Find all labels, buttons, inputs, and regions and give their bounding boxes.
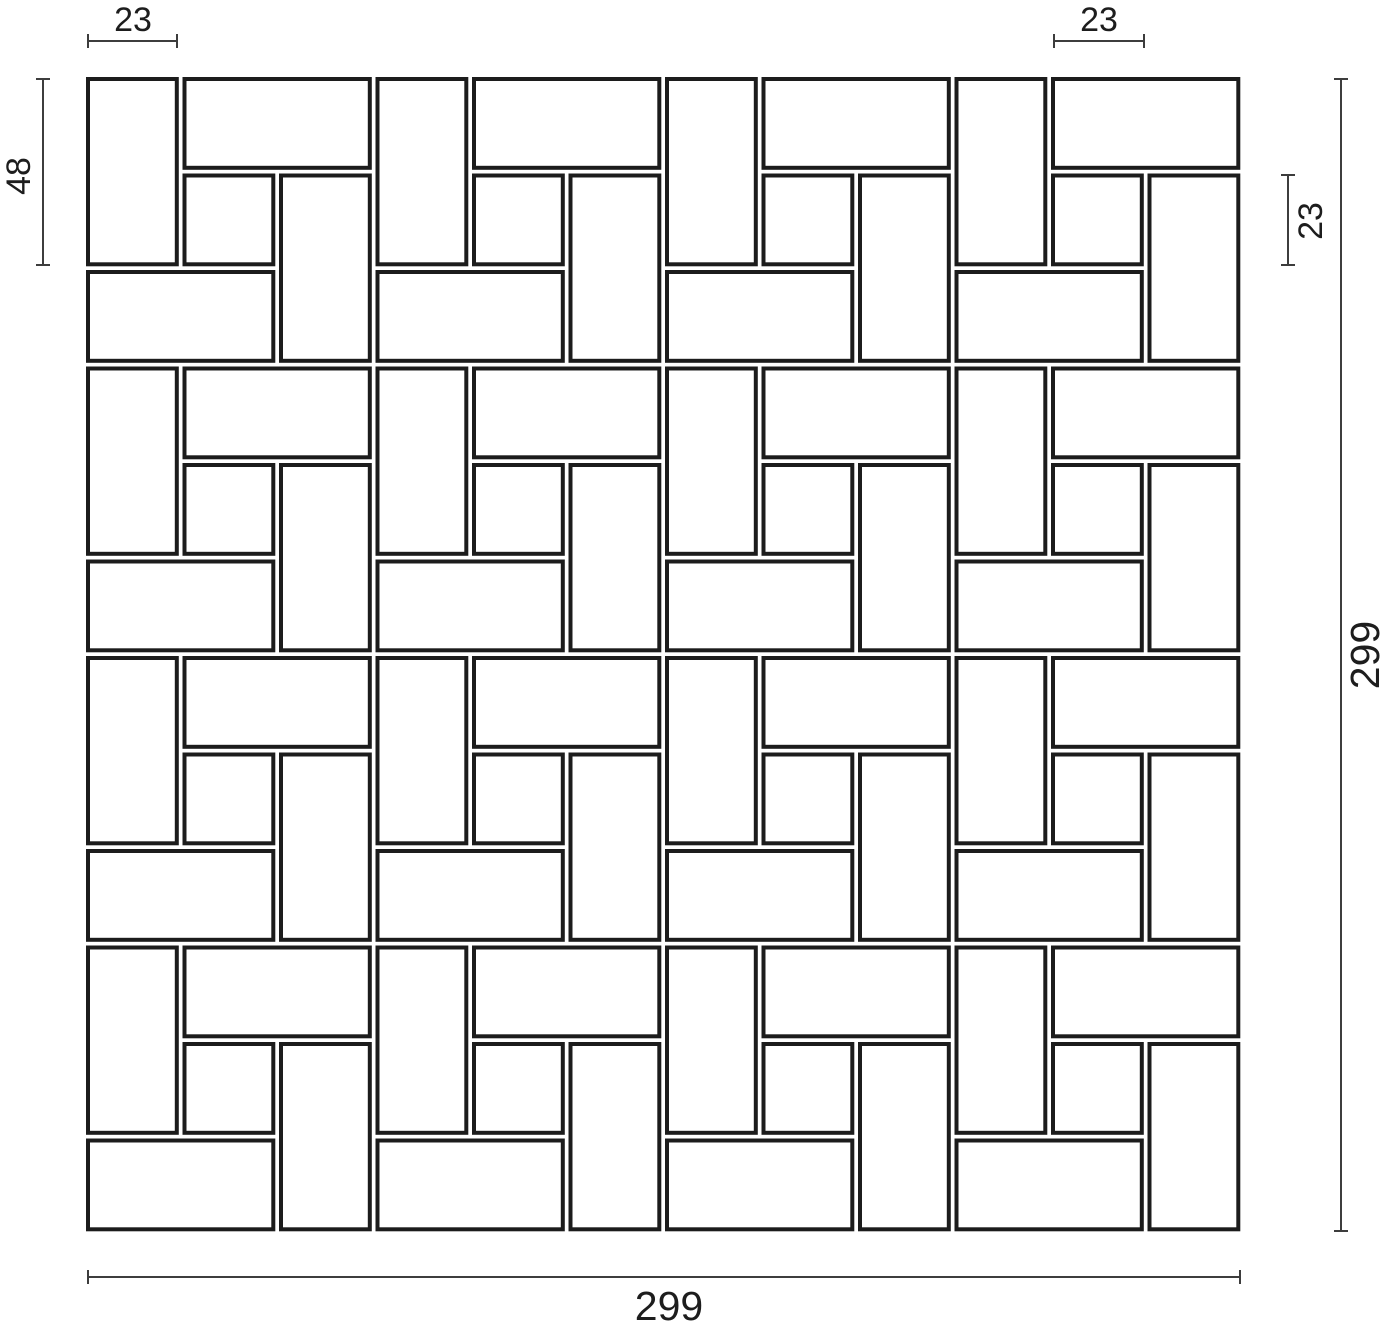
tile-horizontal-top xyxy=(764,79,949,168)
tile-vertical-right xyxy=(860,176,949,361)
tile-vertical-right xyxy=(860,755,949,940)
tile-vertical-left xyxy=(667,948,756,1133)
tile-horizontal-top xyxy=(474,948,659,1037)
pattern-unit xyxy=(88,79,370,361)
pattern-unit xyxy=(88,369,370,651)
tile-vertical-right xyxy=(860,465,949,650)
tile-vertical-left xyxy=(667,369,756,554)
pattern-unit xyxy=(667,79,949,361)
tile-vertical-right xyxy=(281,755,370,940)
tile-vertical-right xyxy=(281,176,370,361)
tile-pattern-drawing: 23234823299299 xyxy=(0,0,1386,1322)
tile-vertical-left xyxy=(378,369,467,554)
dim-label-square-width-top-right: 23 xyxy=(1080,1,1118,39)
dim-label-overall-width-bottom: 299 xyxy=(635,1283,703,1322)
tile-horizontal-top xyxy=(474,79,659,168)
tile-vertical-left xyxy=(378,948,467,1133)
tile-horizontal-bottom xyxy=(88,1141,273,1230)
tile-vertical-left xyxy=(378,658,467,843)
tile-vertical-left xyxy=(88,658,177,843)
tile-horizontal-bottom xyxy=(667,272,852,361)
tile-vertical-left xyxy=(88,369,177,554)
tile-vertical-left xyxy=(667,658,756,843)
tile-vertical-right xyxy=(1150,1044,1239,1229)
tile-center-square xyxy=(764,176,853,265)
tile-vertical-right xyxy=(860,1044,949,1229)
pattern-unit xyxy=(667,369,949,651)
pattern-unit xyxy=(957,948,1239,1230)
tile-horizontal-bottom xyxy=(667,562,852,651)
pattern-unit xyxy=(957,369,1239,651)
tile-vertical-left xyxy=(957,369,1046,554)
pattern-unit xyxy=(378,79,660,361)
tile-horizontal-top xyxy=(474,658,659,747)
tile-vertical-right xyxy=(571,1044,660,1229)
tile-vertical-right xyxy=(571,755,660,940)
tile-center-square xyxy=(185,1044,274,1133)
tile-horizontal-bottom xyxy=(378,1141,563,1230)
tile-center-square xyxy=(764,1044,853,1133)
tile-horizontal-bottom xyxy=(957,851,1142,940)
pattern-unit xyxy=(88,658,370,940)
tile-vertical-left xyxy=(957,658,1046,843)
tile-horizontal-bottom xyxy=(667,1141,852,1230)
tile-center-square xyxy=(185,176,274,265)
pattern-unit xyxy=(378,369,660,651)
tile-horizontal-top xyxy=(1053,948,1238,1037)
tile-vertical-left xyxy=(88,948,177,1133)
tile-horizontal-top xyxy=(1053,369,1238,458)
tile-vertical-right xyxy=(281,465,370,650)
tile-center-square xyxy=(764,755,853,844)
tile-horizontal-top xyxy=(474,369,659,458)
tile-vertical-left xyxy=(88,79,177,264)
dim-label-tile-height-left: 48 xyxy=(0,157,38,195)
pattern-unit xyxy=(378,948,660,1230)
tile-center-square xyxy=(474,465,563,554)
tile-horizontal-bottom xyxy=(88,851,273,940)
tile-horizontal-bottom xyxy=(667,851,852,940)
drawing-canvas: 23234823299299 xyxy=(0,0,1386,1322)
tile-center-square xyxy=(474,176,563,265)
tile-vertical-right xyxy=(281,1044,370,1229)
tile-horizontal-top xyxy=(185,948,370,1037)
tile-horizontal-top xyxy=(1053,658,1238,747)
tile-vertical-left xyxy=(957,948,1046,1133)
tile-horizontal-bottom xyxy=(378,851,563,940)
tile-horizontal-top xyxy=(764,369,949,458)
tile-center-square xyxy=(1053,176,1142,265)
tile-horizontal-top xyxy=(185,369,370,458)
tile-vertical-right xyxy=(1150,755,1239,940)
tile-horizontal-bottom xyxy=(88,562,273,651)
tile-horizontal-top xyxy=(764,658,949,747)
tile-horizontal-bottom xyxy=(378,272,563,361)
dim-label-square-height-right: 23 xyxy=(1292,202,1330,240)
tile-center-square xyxy=(1053,755,1142,844)
tile-horizontal-bottom xyxy=(957,272,1142,361)
tile-horizontal-bottom xyxy=(957,1141,1142,1230)
tile-center-square xyxy=(474,1044,563,1133)
tile-horizontal-top xyxy=(1053,79,1238,168)
pattern-unit xyxy=(957,658,1239,940)
tile-vertical-right xyxy=(1150,465,1239,650)
tile-center-square xyxy=(474,755,563,844)
pattern-unit xyxy=(667,948,949,1230)
tile-horizontal-top xyxy=(185,658,370,747)
tile-horizontal-bottom xyxy=(378,562,563,651)
tile-vertical-right xyxy=(571,465,660,650)
dim-label-tile-width-top-left: 23 xyxy=(114,1,152,39)
pattern-unit xyxy=(378,658,660,940)
tile-horizontal-top xyxy=(764,948,949,1037)
dim-label-overall-height-right: 299 xyxy=(1342,621,1386,689)
pattern-unit xyxy=(957,79,1239,361)
tile-center-square xyxy=(185,755,274,844)
tile-horizontal-bottom xyxy=(957,562,1142,651)
tile-vertical-left xyxy=(957,79,1046,264)
tile-vertical-right xyxy=(571,176,660,361)
pattern-unit xyxy=(667,658,949,940)
tile-center-square xyxy=(764,465,853,554)
tile-horizontal-top xyxy=(185,79,370,168)
tile-vertical-left xyxy=(667,79,756,264)
tile-vertical-left xyxy=(378,79,467,264)
tile-center-square xyxy=(185,465,274,554)
tile-vertical-right xyxy=(1150,176,1239,361)
pattern-unit xyxy=(88,948,370,1230)
tile-horizontal-bottom xyxy=(88,272,273,361)
tile-center-square xyxy=(1053,1044,1142,1133)
tile-center-square xyxy=(1053,465,1142,554)
